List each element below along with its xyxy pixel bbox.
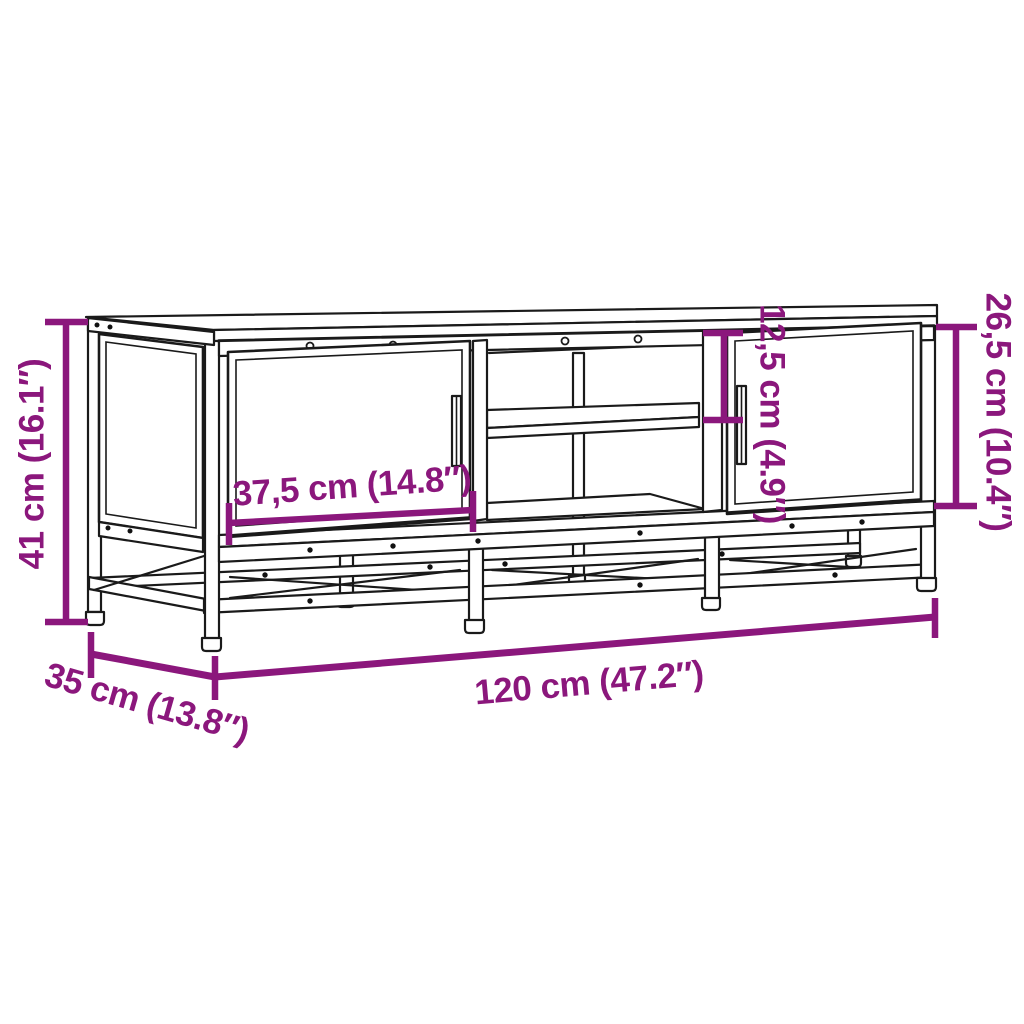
dimension-diagram-svg: 41 cm (16.1″) 37,5 cm (14.8″) 12,5 cm (4… [0, 0, 1024, 1024]
dimension-label-height: 41 cm (16.1″) [13, 359, 52, 570]
dimension-label-depth: 35 cm (13.8″) [40, 655, 253, 751]
middle-shelf [487, 403, 699, 438]
dimension-label-width: 120 cm (47.2″) [473, 654, 705, 713]
dimension-line-door-height [934, 327, 977, 506]
product-dimension-diagram: 41 cm (16.1″) 37,5 cm (14.8″) 12,5 cm (4… [0, 0, 1024, 1024]
cabinet-line-drawing [86, 305, 937, 651]
right-door-handle [737, 386, 746, 464]
left-door-handle [452, 396, 461, 466]
dimension-label-door-height: 26,5 cm (10.4″) [979, 293, 1018, 532]
left-side-panel [99, 334, 203, 552]
dimension-label-shelf-height: 12,5 cm (4.9″) [753, 304, 792, 524]
